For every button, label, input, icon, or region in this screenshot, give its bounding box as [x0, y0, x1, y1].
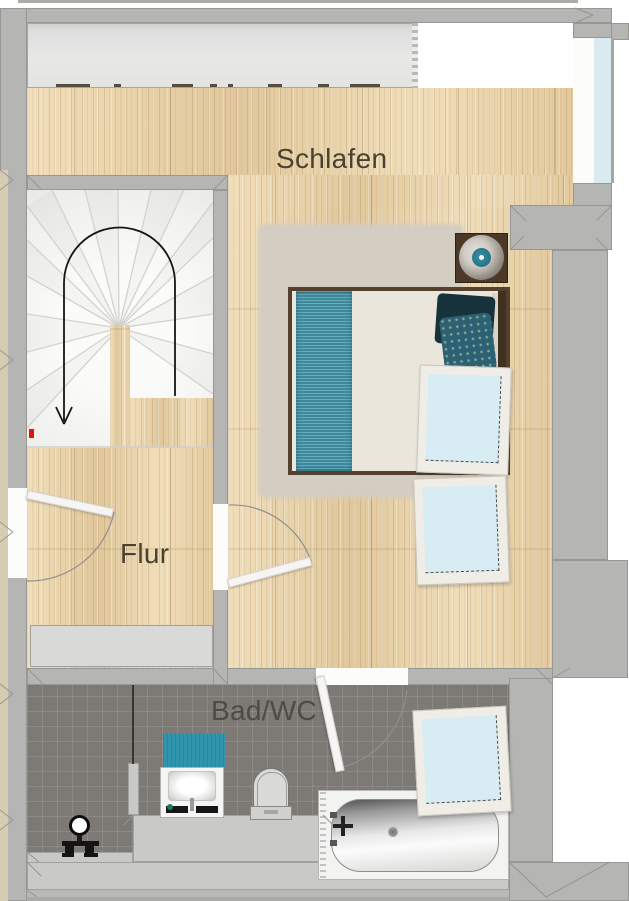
bathtub-edge-ticks [320, 792, 326, 878]
wall-stair-east [213, 190, 228, 685]
stair-spine-wall [110, 325, 130, 448]
bedside-lamp-finial [479, 255, 484, 260]
roof-window-bedroom-2[interactable] [413, 475, 510, 585]
wardrobe-handle [228, 84, 233, 87]
door-opening-west [8, 488, 27, 578]
wardrobe-handle [318, 84, 329, 87]
knee-wall-edge-dark [27, 897, 509, 901]
east-window-frame [611, 38, 614, 183]
ridge-line [18, 0, 578, 3]
wardrobe-handle [210, 84, 217, 87]
chimney-block [510, 205, 612, 250]
roof-window-glass [426, 374, 502, 463]
washbasin-faucet [190, 798, 194, 811]
washbasin-bowl [168, 771, 216, 801]
wardrobe-handle [114, 84, 121, 87]
bathtub-faucet-cross [341, 816, 345, 836]
roof-window-glass [422, 485, 499, 574]
room-label-bad-wc: Bad/WC [211, 695, 317, 727]
wall-east-top [573, 23, 612, 38]
east-window-glass[interactable] [594, 38, 611, 183]
roof-window-glass [422, 715, 501, 804]
partition-stub [128, 763, 139, 815]
bathtub-knob [330, 812, 337, 818]
bathtub-drain [388, 827, 398, 837]
wardrobe[interactable] [27, 23, 417, 88]
red-marker [29, 429, 34, 438]
bathtub-knob [330, 840, 337, 846]
washbasin-vanity[interactable] [160, 767, 224, 818]
floor-schlafen-right [228, 175, 573, 208]
wall-east-lower [552, 250, 608, 560]
vanity-platform [133, 815, 323, 862]
door-opening-schlafen [213, 504, 228, 590]
wall-north [18, 8, 612, 23]
wall-bad-north [27, 668, 553, 685]
vanity-towel-slot [196, 806, 218, 813]
shower-partition-line [132, 685, 134, 764]
bath-mat[interactable] [163, 734, 225, 767]
wall-east-south [552, 560, 628, 678]
wall-bad-east [509, 678, 553, 862]
stool-foot [84, 853, 98, 857]
stool-seat-icon[interactable] [69, 815, 90, 836]
roof-window-bath[interactable] [412, 706, 511, 817]
toilet-flush-button [264, 810, 278, 814]
wardrobe-handle [268, 84, 282, 87]
toilet-cistern [250, 806, 292, 820]
flur-knee-wall [30, 625, 213, 667]
wardrobe-handle [172, 84, 193, 87]
stair-lower-landing [130, 398, 213, 448]
floor-plan: Schlafen Flur Bad/WC [0, 0, 629, 901]
wall-east-mid [573, 183, 612, 207]
roof-window-bedroom-1[interactable] [416, 364, 512, 475]
wardrobe-handle [56, 84, 90, 87]
wardrobe-handle [350, 84, 380, 87]
wall-stair-north [27, 175, 228, 190]
knee-wall-edge [27, 890, 509, 897]
room-label-flur: Flur [120, 538, 169, 570]
wardrobe-edge-serration [412, 23, 418, 88]
east-window-niche [573, 38, 594, 183]
stool-foot [62, 853, 74, 857]
door-opening-bad [316, 668, 408, 685]
wall-corner-southeast [509, 862, 629, 901]
bedside-table[interactable] [455, 233, 508, 283]
soap-dish [167, 804, 173, 810]
wall-west-outer-strip [0, 170, 8, 901]
room-label-schlafen: Schlafen [276, 143, 387, 175]
bed-blanket [296, 291, 352, 471]
